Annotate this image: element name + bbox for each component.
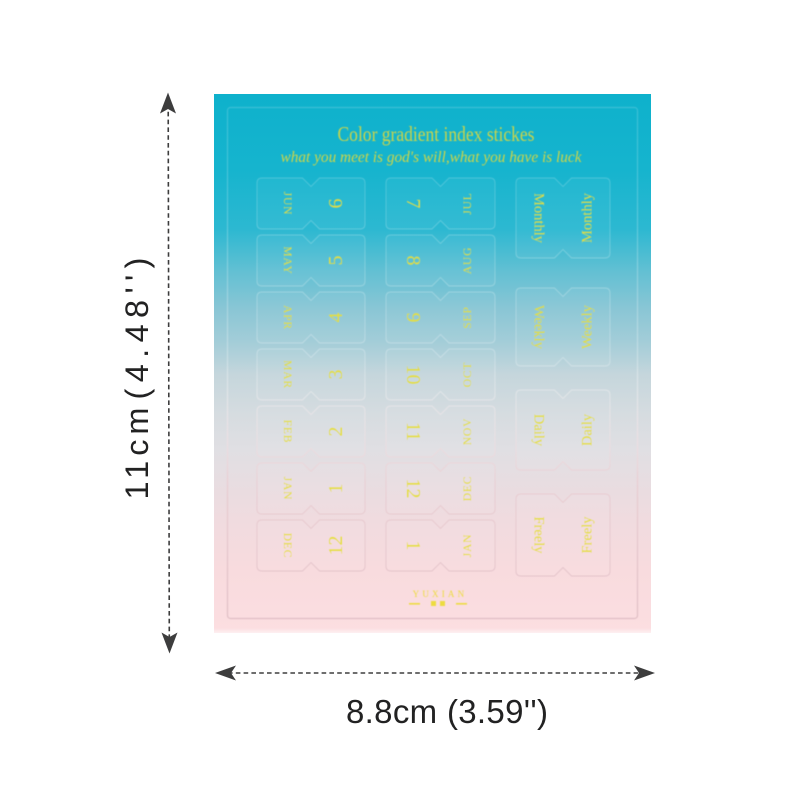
svg-text:Color gradient index stickes: Color gradient index stickes [338, 122, 535, 146]
svg-text:7: 7 [402, 199, 424, 209]
svg-text:JUL: JUL [461, 192, 474, 214]
svg-text:Daily: Daily [530, 414, 546, 447]
svg-text:NOV: NOV [461, 418, 474, 446]
svg-text:Freely: Freely [530, 516, 546, 554]
svg-text:8: 8 [402, 256, 424, 266]
svg-text:1: 1 [402, 541, 424, 551]
svg-text:Monthly: Monthly [530, 193, 546, 244]
svg-text:MAR: MAR [281, 360, 294, 389]
svg-text:MAY: MAY [281, 246, 294, 274]
svg-text:YUXIAN: YUXIAN [413, 589, 468, 599]
svg-text:6: 6 [325, 199, 347, 209]
svg-text:Freely: Freely [580, 516, 596, 554]
svg-text:Weekly: Weekly [530, 305, 546, 350]
svg-text:8.8cm (3.59''): 8.8cm (3.59'') [346, 693, 548, 730]
svg-text:10: 10 [402, 365, 424, 385]
svg-text:(4.48''): (4.48'') [119, 258, 155, 400]
svg-text:12: 12 [325, 536, 347, 556]
svg-text:12: 12 [402, 479, 424, 499]
svg-text:11: 11 [402, 422, 424, 441]
svg-text:FEB: FEB [281, 420, 294, 444]
svg-text:DEC: DEC [281, 533, 294, 559]
svg-text:OCT: OCT [461, 362, 474, 388]
svg-text:9: 9 [402, 313, 424, 323]
svg-text:2: 2 [325, 427, 347, 437]
svg-text:5: 5 [325, 256, 347, 266]
svg-text:JAN: JAN [461, 534, 474, 558]
svg-text:11cm: 11cm [119, 408, 155, 500]
svg-text:3: 3 [325, 370, 347, 380]
svg-text:JUN: JUN [281, 192, 294, 216]
svg-text:1: 1 [325, 484, 347, 494]
svg-text:Daily: Daily [580, 413, 596, 446]
svg-text:Weekly: Weekly [580, 304, 596, 349]
svg-text:APR: APR [281, 305, 294, 330]
svg-text:Monthly: Monthly [580, 192, 596, 243]
svg-text:SEP: SEP [461, 306, 474, 328]
svg-text:AUG: AUG [461, 247, 474, 275]
svg-text:4: 4 [325, 313, 347, 323]
svg-text:JAN: JAN [281, 477, 294, 501]
svg-text:what you meet is god's will,wh: what you meet is god's will,what you hav… [281, 149, 583, 166]
svg-text:DEC: DEC [461, 476, 474, 502]
